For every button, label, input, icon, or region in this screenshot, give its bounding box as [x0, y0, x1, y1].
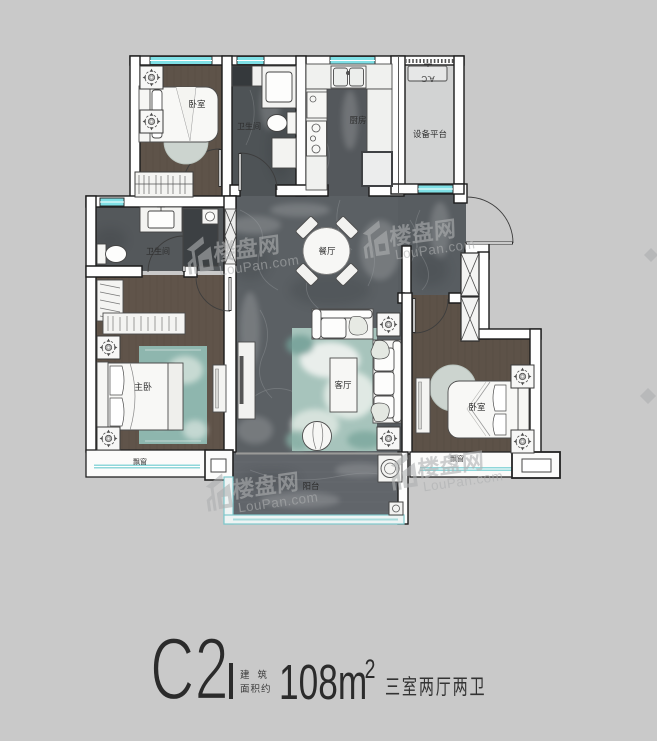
svg-text:设备平台: 设备平台 — [413, 129, 447, 139]
svg-text:三室两厅两卫: 三室两厅两卫 — [385, 674, 486, 698]
svg-text:建筑: 建筑 — [240, 669, 275, 681]
svg-text:卫生间: 卫生间 — [237, 121, 261, 131]
svg-text:卧室: 卧室 — [468, 402, 486, 412]
svg-text:卧室: 卧室 — [188, 99, 206, 109]
svg-text:客厅: 客厅 — [334, 380, 352, 390]
svg-text:厨房: 厨房 — [349, 115, 366, 125]
svg-text:卫生间: 卫生间 — [146, 246, 170, 256]
svg-text:主卧: 主卧 — [134, 381, 152, 392]
svg-text:C2: C2 — [150, 620, 229, 718]
svg-text:A.C: A.C — [421, 74, 435, 83]
svg-text:餐厅: 餐厅 — [318, 246, 336, 256]
svg-text:飘窗: 飘窗 — [133, 457, 147, 466]
svg-text:108m: 108m — [279, 655, 367, 710]
svg-text:2: 2 — [365, 654, 376, 684]
svg-text:面积约: 面积约 — [240, 683, 272, 695]
